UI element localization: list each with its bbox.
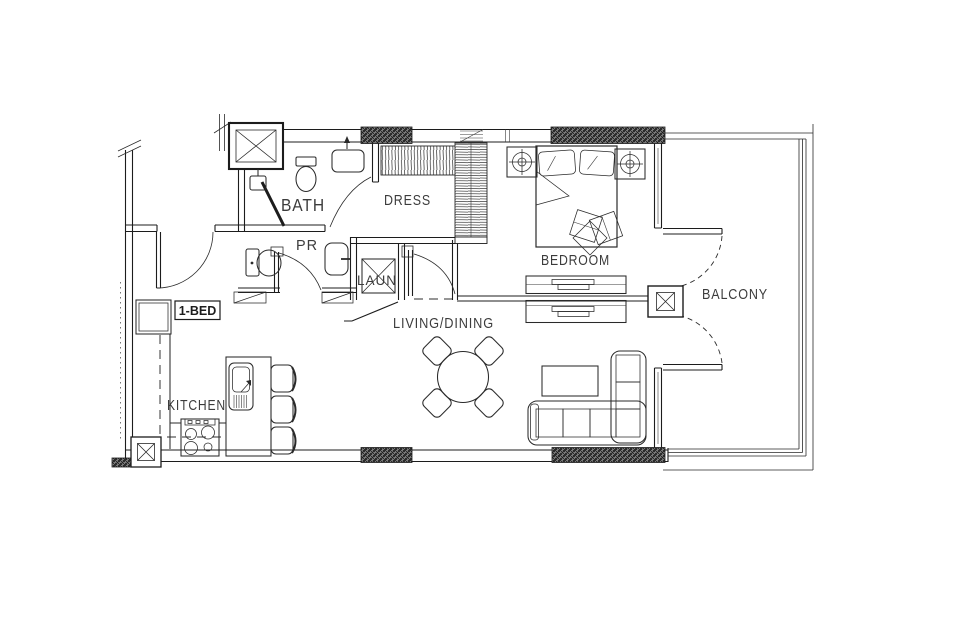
corner-column-box bbox=[131, 437, 161, 467]
label-bath: BATH bbox=[281, 195, 325, 215]
dining-chairs bbox=[421, 335, 506, 420]
unit-type-tag: 1-BED bbox=[175, 301, 220, 320]
structural-columns bbox=[112, 127, 665, 467]
bar-stools bbox=[271, 365, 296, 454]
toilet-tank bbox=[296, 157, 316, 166]
floor-plan-page: BATH DRESS PR LAUN BEDROOM BALCONY LIVIN… bbox=[0, 0, 969, 624]
sectional-sofa bbox=[528, 351, 646, 445]
refrigerator bbox=[136, 300, 171, 334]
media-console bbox=[526, 301, 626, 323]
laundry-door bbox=[344, 302, 398, 321]
label-living-dining: LIVING/DINING bbox=[393, 315, 494, 332]
bath-sink bbox=[332, 136, 364, 172]
kitchen-island bbox=[226, 357, 271, 456]
powder-room-fixtures bbox=[234, 243, 353, 303]
label-laundry: LAUN bbox=[357, 272, 397, 288]
entry-door bbox=[157, 232, 214, 288]
floor-plan-drawing: BATH DRESS PR LAUN BEDROOM BALCONY LIVIN… bbox=[0, 0, 969, 624]
bedroom-dresser bbox=[526, 276, 626, 294]
vanity-sink bbox=[325, 243, 350, 275]
nightstand-left bbox=[507, 147, 537, 177]
toilet-bowl bbox=[296, 167, 316, 192]
shaft bbox=[229, 123, 283, 169]
wall-junction-box bbox=[648, 286, 683, 317]
bath-fixtures bbox=[250, 136, 364, 192]
label-dress: DRESS bbox=[384, 192, 431, 209]
nightstand-right bbox=[615, 149, 645, 179]
island-sink bbox=[229, 363, 253, 410]
bedroom-furniture bbox=[507, 146, 645, 294]
coffee-table bbox=[542, 366, 598, 396]
column-hatch-top-right bbox=[551, 127, 665, 144]
column-hatch-top-left bbox=[361, 127, 412, 144]
label-balcony: BALCONY bbox=[702, 286, 768, 303]
upper-cabinet-dashed-line bbox=[152, 335, 227, 437]
column-hatch-bottom-right bbox=[552, 448, 665, 463]
kitchen-area bbox=[136, 300, 296, 456]
threshold-sills bbox=[234, 292, 353, 303]
counter-edge bbox=[170, 334, 226, 449]
unit-type-label: 1-BED bbox=[179, 304, 217, 318]
label-kitchen: KITCHEN bbox=[167, 397, 226, 414]
bedroom-hall-door bbox=[402, 246, 455, 299]
toilet-bowl bbox=[257, 250, 281, 276]
bed bbox=[536, 146, 623, 255]
label-bedroom: BEDROOM bbox=[541, 252, 610, 269]
label-powder-room: PR bbox=[296, 237, 318, 254]
column-hatch-bottom-left bbox=[361, 448, 412, 463]
